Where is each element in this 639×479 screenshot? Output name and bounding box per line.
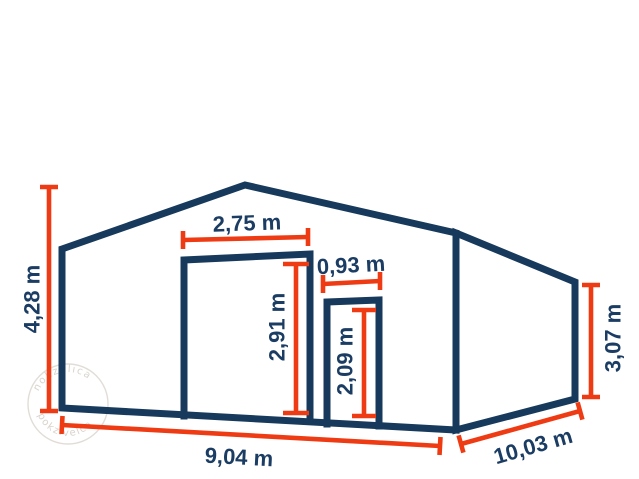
- dimension-diagram: nokzvlıca pokzıvelca: [0, 0, 639, 479]
- label-small-door-height: 2,09 m: [333, 327, 358, 396]
- hall-side-face: [456, 233, 575, 430]
- diagram-svg: nokzvlıca pokzıvelca: [0, 0, 639, 479]
- label-side-depth: 10,03 m: [491, 423, 575, 469]
- large-door-outline: [184, 254, 310, 421]
- label-small-door-width: 0,93 m: [316, 251, 386, 280]
- watermark: nokzvlıca pokzıvelca: [28, 364, 108, 444]
- label-total-height: 4,28 m: [20, 265, 45, 334]
- dim-eave-height: [582, 285, 600, 397]
- label-large-door-width: 2,75 m: [212, 209, 281, 236]
- label-eave-height: 3,07 m: [601, 304, 626, 373]
- label-front-width: 9,04 m: [204, 443, 274, 472]
- label-large-door-height: 2,91 m: [265, 293, 290, 362]
